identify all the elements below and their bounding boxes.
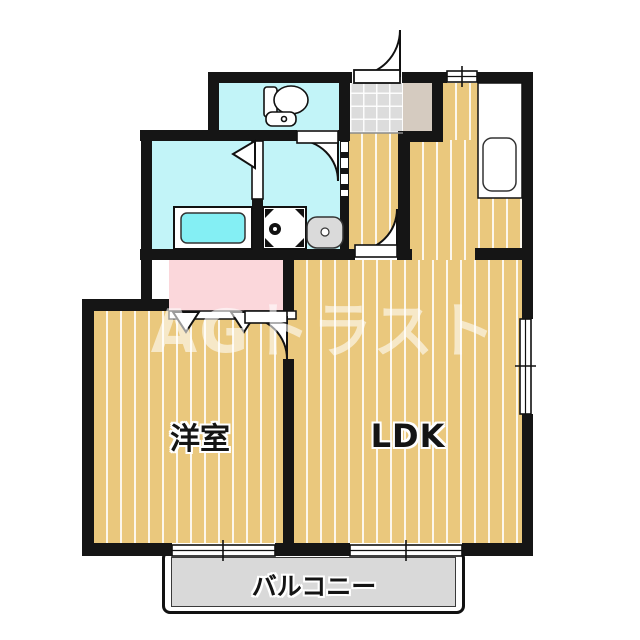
wall (82, 543, 172, 556)
wall (475, 248, 533, 260)
wall (252, 199, 263, 255)
wall (283, 359, 294, 543)
wall (140, 249, 355, 260)
entrance-door-icon (354, 30, 400, 83)
western-room-label: 洋室 (150, 414, 250, 458)
shoe-cabinet (403, 83, 432, 131)
wall (275, 543, 350, 556)
bathroom-floor (152, 141, 252, 249)
wall (339, 72, 350, 133)
wall (432, 72, 443, 142)
hallway-floor (349, 133, 398, 250)
balcony-label: バルコニー (214, 567, 414, 603)
wall (82, 299, 94, 556)
wall (522, 72, 533, 319)
wall (522, 414, 533, 556)
entrance-tile-floor (350, 83, 403, 133)
floor-plan: 洋室 LDK バルコニー AGトラスト (0, 0, 640, 640)
wall (208, 72, 352, 83)
wall (208, 72, 219, 135)
toilet-room-floor (219, 83, 339, 130)
ldk-label: LDK (358, 417, 458, 455)
wall (140, 130, 297, 141)
wall (398, 133, 410, 260)
washroom-floor (263, 141, 340, 249)
watermark-text: AGトラスト (148, 283, 500, 370)
ldk-floor-mid (410, 140, 522, 260)
ldk-floor-top (443, 83, 522, 140)
wall (340, 133, 349, 255)
